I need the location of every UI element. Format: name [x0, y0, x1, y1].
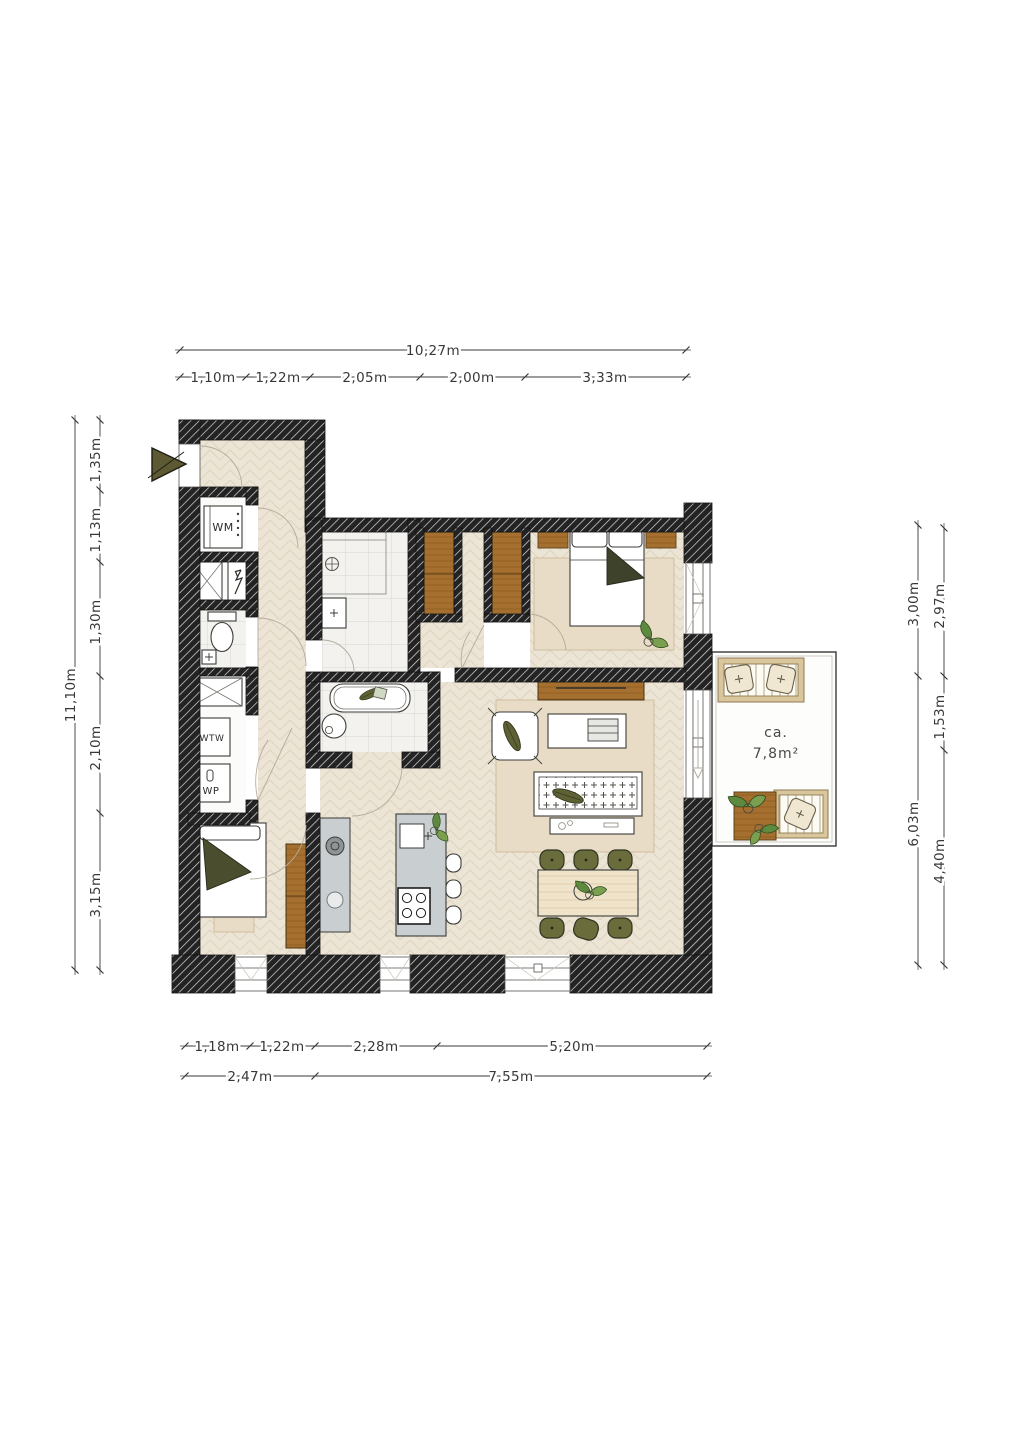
wall — [179, 420, 325, 440]
island-sink — [400, 824, 424, 848]
wall — [410, 955, 505, 993]
wall — [179, 487, 200, 955]
wall — [179, 420, 200, 444]
cushion-icon — [766, 664, 797, 695]
wall — [684, 798, 712, 955]
dim-top-3: 2,05m — [342, 370, 387, 386]
dim-left-2: 1,13m — [88, 507, 104, 552]
dim-top-5: 3,33m — [582, 370, 627, 386]
dim-right-inner-2: 1,53m — [932, 694, 948, 739]
wall — [320, 672, 440, 682]
wall — [200, 668, 258, 676]
balcony-bench-top — [718, 658, 804, 702]
living-room — [488, 676, 654, 852]
washing-machine-label: WM — [212, 521, 233, 534]
dim-right-inner-1: 2,97m — [932, 583, 948, 628]
wall — [484, 614, 530, 622]
wall — [454, 528, 462, 622]
wall — [684, 503, 712, 563]
dim-top-2: 1,22m — [255, 370, 300, 386]
wall — [200, 600, 258, 610]
hallway-floor — [258, 487, 306, 825]
dim-left-5: 3,15m — [88, 872, 104, 917]
kitchen-counter — [320, 818, 350, 932]
wall — [416, 528, 424, 622]
nightstand — [538, 532, 568, 548]
toilet — [211, 623, 233, 652]
balcony-area-value: 7,8m² — [753, 746, 800, 762]
floor-plan-canvas: 10,27m 1,10m 1,22m 2,05m 2,00m 3,33m 11,… — [0, 0, 1018, 1440]
meter-closet — [228, 560, 248, 602]
wall — [188, 813, 250, 825]
pillow — [609, 530, 642, 547]
window — [380, 957, 410, 991]
ventilation-label: WTW — [200, 734, 225, 744]
window — [505, 957, 570, 991]
books — [588, 719, 618, 741]
wall — [306, 752, 352, 768]
dim-right-outer-1: 3,00m — [906, 581, 922, 626]
wall — [402, 752, 440, 768]
dim-bottom-5: 2,47m — [227, 1069, 272, 1085]
wall — [570, 955, 712, 993]
wall — [455, 668, 686, 682]
nightstand — [646, 532, 676, 548]
wall — [305, 518, 689, 532]
bar-stool — [446, 854, 461, 872]
dim-bottom-1: 1,18m — [194, 1039, 239, 1055]
closet-corridor-floor — [462, 532, 484, 668]
wall — [200, 552, 258, 562]
dim-left-total: 11,10m — [63, 668, 79, 722]
dining-area — [538, 850, 638, 942]
wall — [306, 672, 320, 682]
pillow — [572, 530, 607, 547]
wall — [172, 955, 235, 993]
dim-top-total: 10,27m — [406, 343, 460, 359]
window — [235, 957, 267, 991]
wall — [684, 634, 712, 690]
master-bedroom — [534, 528, 676, 651]
dim-bottom-2: 1,22m — [259, 1039, 304, 1055]
dim-left-4: 2,10m — [88, 725, 104, 770]
coffee-table — [548, 714, 626, 748]
balcony-area-prefix: ca. — [764, 725, 788, 741]
wall — [306, 813, 320, 955]
window — [686, 563, 710, 634]
balcony-bench-corner — [774, 790, 828, 838]
wall — [428, 672, 440, 752]
cushion-icon — [724, 664, 754, 694]
corridor-nook-floor — [420, 622, 462, 668]
dim-top-1: 1,10m — [190, 370, 235, 386]
dim-right-outer-2: 6,03m — [906, 801, 922, 846]
dim-top-4: 2,00m — [449, 370, 494, 386]
cistern — [208, 612, 236, 621]
kitchen-sink-round — [326, 837, 344, 855]
floor-plan-drawing: 10,27m 1,10m 1,22m 2,05m 2,00m 3,33m 11,… — [0, 0, 1018, 1440]
stove — [398, 888, 430, 924]
wall — [522, 528, 530, 622]
dim-left-3: 1,30m — [88, 599, 104, 644]
balcony-sliding-door — [686, 690, 710, 798]
heat-pump-label: WP — [203, 786, 220, 797]
dim-left-1: 1,35m — [88, 437, 104, 482]
bar-stool — [446, 906, 461, 924]
wall — [484, 528, 492, 622]
dim-bottom-6: 7,55m — [488, 1069, 533, 1085]
wall — [246, 487, 258, 505]
wall — [306, 520, 322, 640]
hob-round — [327, 892, 343, 908]
wall — [416, 614, 462, 622]
dim-right-inner-3: 4,40m — [932, 838, 948, 883]
sofa — [534, 772, 642, 816]
washbasin-round — [322, 714, 346, 738]
bar-stool — [446, 880, 461, 898]
wall — [305, 440, 325, 522]
sofa-console — [550, 818, 634, 834]
entry-hall-floor — [200, 440, 305, 487]
dim-bottom-3: 2,28m — [353, 1039, 398, 1055]
armchair — [488, 708, 542, 764]
wall — [267, 955, 380, 993]
dim-bottom-4: 5,20m — [549, 1039, 594, 1055]
pillow — [200, 826, 260, 840]
